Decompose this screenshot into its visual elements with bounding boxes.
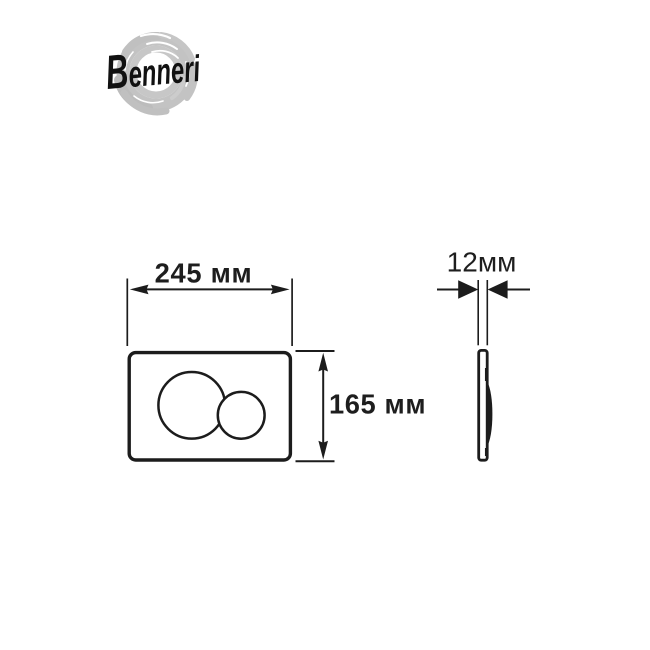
svg-text:165 мм: 165 мм	[329, 389, 426, 420]
svg-text:245 мм: 245 мм	[155, 258, 253, 289]
svg-text:12мм: 12мм	[447, 247, 517, 278]
